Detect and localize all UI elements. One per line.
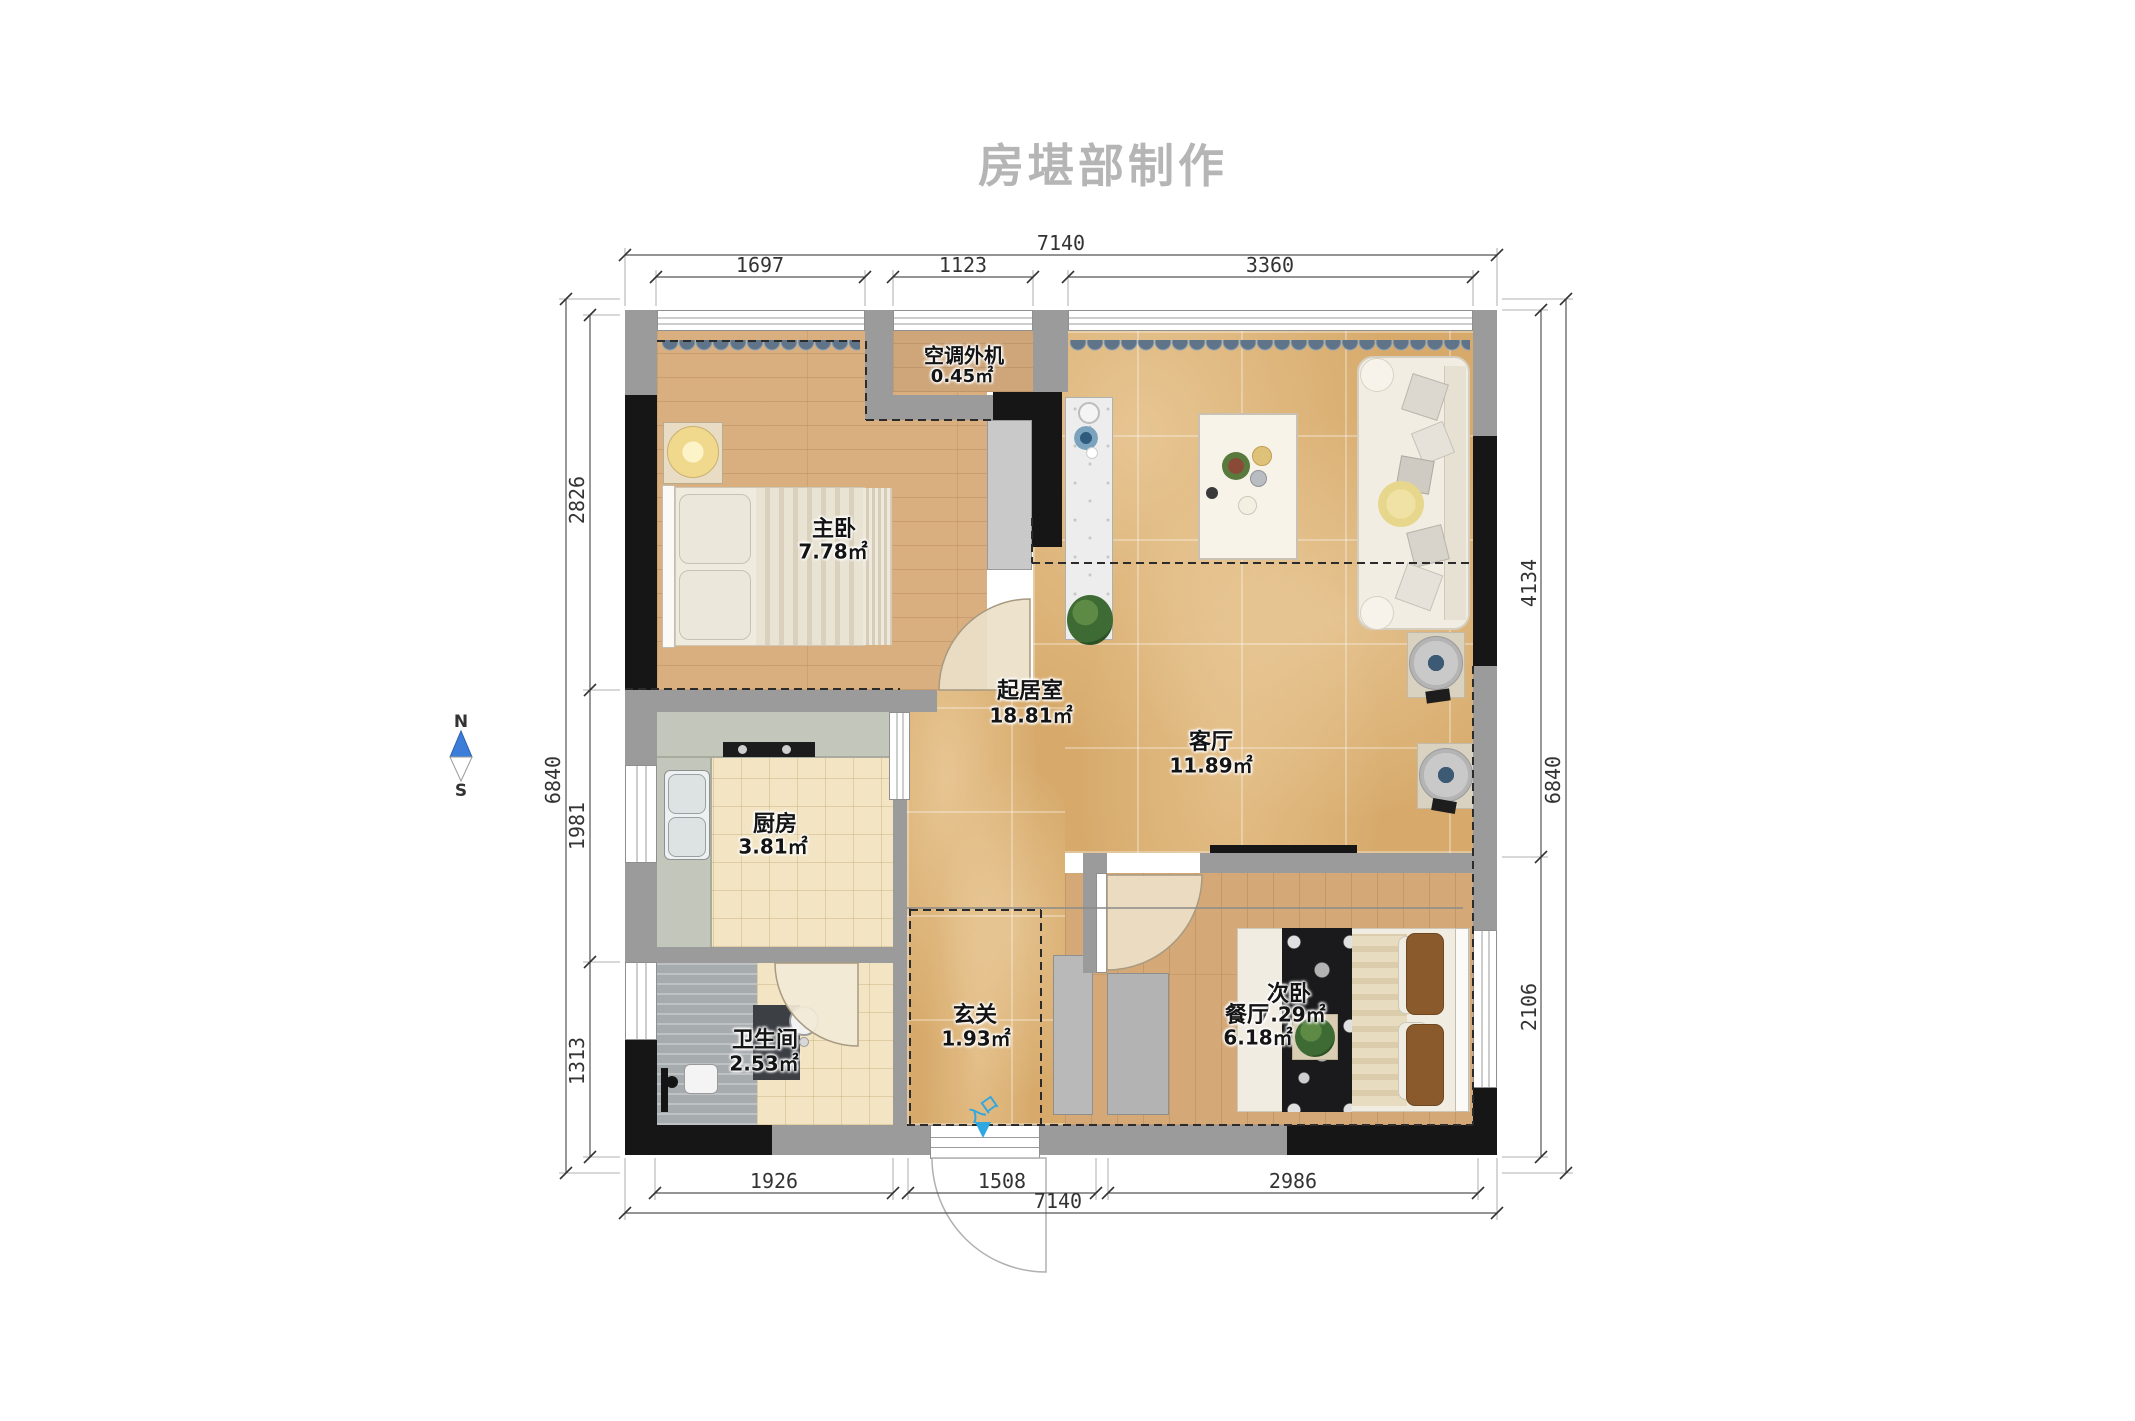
- room-area-kitchen: 3.81㎡: [738, 831, 807, 860]
- wall-segment: [1473, 310, 1497, 436]
- wall-segment: [772, 1125, 930, 1155]
- curtain: [662, 340, 860, 354]
- brown-pillow: [1406, 1024, 1444, 1106]
- window-ac-niche: [893, 310, 1033, 331]
- wall-segment: [625, 310, 657, 395]
- wall-column: [1473, 436, 1497, 666]
- potted-plant: [1067, 595, 1113, 645]
- cooktop-burner: [782, 745, 791, 754]
- wall-column: [625, 1125, 772, 1155]
- shower-head: [666, 1076, 678, 1088]
- dim-top-seg3: 3360: [1246, 253, 1294, 277]
- wall-segment: [1033, 331, 1068, 392]
- decor-bowl: [1074, 426, 1098, 450]
- room-area-bathroom: 2.53㎡: [729, 1048, 798, 1077]
- bed-fringe: [863, 488, 892, 645]
- floorplan-canvas: 房堪部制作: [0, 0, 2135, 1421]
- side-table: [1409, 636, 1463, 690]
- dim-right-overall: 6840: [1541, 756, 1565, 804]
- dim-bottom-seg3: 2986: [1269, 1169, 1317, 1193]
- room-area-dining: 6.18㎡: [1223, 1022, 1292, 1051]
- dim-left-seg3: 1313: [565, 1037, 589, 1085]
- sink-bowl: [668, 774, 706, 814]
- wall-segment: [1083, 853, 1096, 973]
- sofa-armrest: [1360, 596, 1394, 630]
- dim-right-seg1: 4134: [1517, 559, 1541, 607]
- cup: [1206, 487, 1218, 499]
- pillow: [679, 570, 751, 640]
- wardrobe: [1107, 973, 1169, 1115]
- window-living: [1068, 310, 1473, 331]
- lintel-beam: [1210, 845, 1357, 853]
- cooktop: [723, 742, 815, 757]
- gray-bowl: [1250, 470, 1267, 487]
- wall-column: [993, 392, 1062, 420]
- wall-segment: [1473, 666, 1497, 930]
- dim-bottom-seg1: 1926: [750, 1169, 798, 1193]
- wall-column: [1287, 1125, 1497, 1155]
- dim-right-seg2: 2106: [1517, 983, 1541, 1031]
- room-area-master: 7.78㎡: [798, 536, 867, 565]
- room-area-entry: 1.93㎡: [941, 1023, 1010, 1052]
- bath-faucet: [799, 1037, 809, 1047]
- room-area-ac-unit: 0.45㎡: [931, 362, 993, 388]
- second-bedroom-door-leaf: [1096, 873, 1107, 973]
- dim-top-seg2: 1123: [939, 253, 987, 277]
- entrance-threshold: [930, 1125, 1040, 1159]
- wall-segment: [1200, 853, 1473, 873]
- wall-segment: [865, 310, 893, 331]
- cooktop-burner: [738, 745, 747, 754]
- room-area-living-room: 11.89㎡: [1169, 750, 1252, 779]
- plate: [1238, 496, 1257, 515]
- side-table: [1419, 748, 1473, 802]
- dim-bottom-overall: 7140: [1034, 1189, 1082, 1213]
- decor-plate: [1078, 402, 1100, 424]
- decor-ball: [1086, 447, 1098, 459]
- dim-left-seg1: 2826: [565, 476, 589, 524]
- compass-icon: [450, 731, 472, 781]
- window-kitchen: [625, 765, 657, 863]
- window-master: [657, 310, 865, 331]
- shoe-cabinet: [1053, 955, 1093, 1115]
- curtain: [1070, 340, 1470, 355]
- wall-segment: [1033, 310, 1068, 331]
- second-bed-headboard: [1455, 928, 1469, 1112]
- shower-fixture: [661, 1068, 668, 1112]
- master-wardrobe: [987, 420, 1032, 570]
- wall-column: [1032, 420, 1062, 547]
- gold-dish: [1252, 446, 1272, 466]
- sink-bowl: [668, 817, 706, 857]
- kitchen-sliding-door: [889, 712, 910, 800]
- wall-segment: [1040, 1125, 1287, 1155]
- master-bed-headboard: [662, 485, 675, 648]
- dim-left-seg2: 1981: [565, 802, 589, 850]
- compass-south-label: S: [455, 781, 467, 801]
- room-area-sitting-room: 18.81㎡: [989, 700, 1072, 729]
- sofa-back: [1444, 366, 1466, 620]
- page-title: 房堪部制作: [978, 130, 1228, 196]
- dim-top-overall: 7140: [1037, 231, 1085, 255]
- wall-segment: [625, 690, 937, 712]
- sofa-round-pillow: [1378, 481, 1424, 527]
- wall-column: [625, 395, 657, 690]
- flower-bowl: [1222, 452, 1250, 480]
- wall-segment: [893, 963, 907, 1125]
- brown-pillow: [1406, 933, 1444, 1015]
- pillow: [679, 494, 751, 564]
- wall-segment: [625, 947, 907, 963]
- dim-bottom-seg2: 1508: [978, 1169, 1026, 1193]
- wall-segment: [893, 395, 993, 420]
- floor-hallway-entry: [907, 690, 1065, 1125]
- window-second-bedroom: [1473, 930, 1497, 1088]
- dim-left-overall: 6840: [541, 756, 565, 804]
- window-bathroom: [625, 962, 657, 1040]
- table-lamp: [667, 426, 719, 478]
- dim-top-seg1: 1697: [736, 253, 784, 277]
- compass-north-label: N: [454, 712, 468, 732]
- wall-segment: [865, 331, 893, 420]
- sofa-armrest: [1360, 358, 1394, 392]
- toilet: [684, 1064, 718, 1094]
